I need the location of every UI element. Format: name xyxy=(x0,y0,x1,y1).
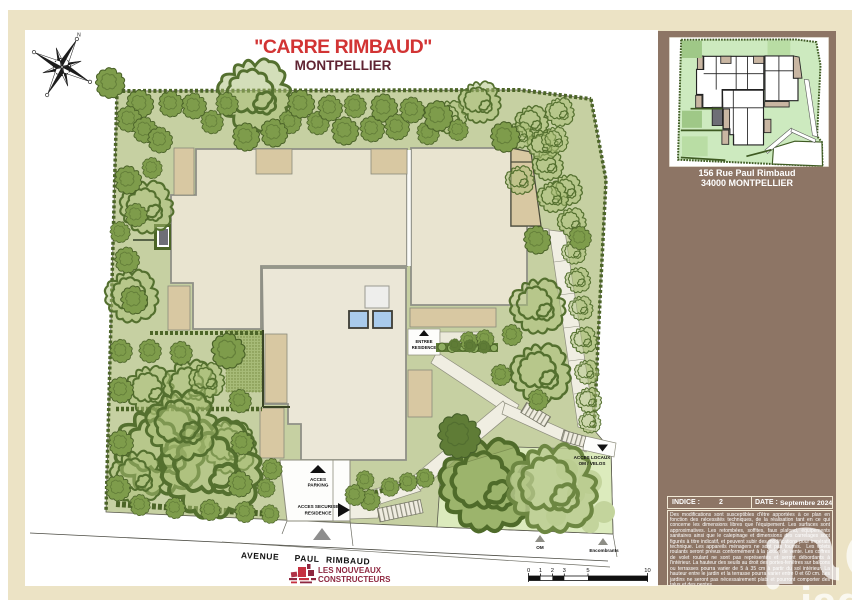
svg-text:PAUL: PAUL xyxy=(294,553,319,564)
svg-text:OM / VELOS: OM / VELOS xyxy=(579,461,606,466)
svg-text:5: 5 xyxy=(586,568,589,574)
svg-text:ACCES LOCAUX: ACCES LOCAUX xyxy=(574,455,612,460)
svg-text:LES NOUVEAUX: LES NOUVEAUX xyxy=(318,566,382,575)
svg-text:ACCES: ACCES xyxy=(310,477,326,482)
svg-text:CONSTRUCTEURS: CONSTRUCTEURS xyxy=(318,575,391,584)
svg-text:ACCES SECURISE: ACCES SECURISE xyxy=(298,504,339,509)
svg-text:N: N xyxy=(77,33,81,39)
svg-text:ENTREE: ENTREE xyxy=(416,339,433,344)
svg-text:PARKING: PARKING xyxy=(308,483,329,488)
svg-text:RIMBAUD: RIMBAUD xyxy=(326,555,371,567)
svg-text:0: 0 xyxy=(527,568,530,574)
svg-text:2: 2 xyxy=(551,568,554,574)
svg-text:OM: OM xyxy=(536,545,544,550)
svg-text:RESIDENCE: RESIDENCE xyxy=(412,345,437,350)
svg-text:Encombrants: Encombrants xyxy=(589,548,619,553)
svg-text:1: 1 xyxy=(539,568,542,574)
svg-text:RESIDENCE: RESIDENCE xyxy=(305,511,332,516)
svg-text:3: 3 xyxy=(563,568,566,574)
svg-text:AVENUE: AVENUE xyxy=(241,550,280,562)
svg-text:10: 10 xyxy=(644,568,650,574)
svg-text:iad: iad xyxy=(800,578,860,612)
